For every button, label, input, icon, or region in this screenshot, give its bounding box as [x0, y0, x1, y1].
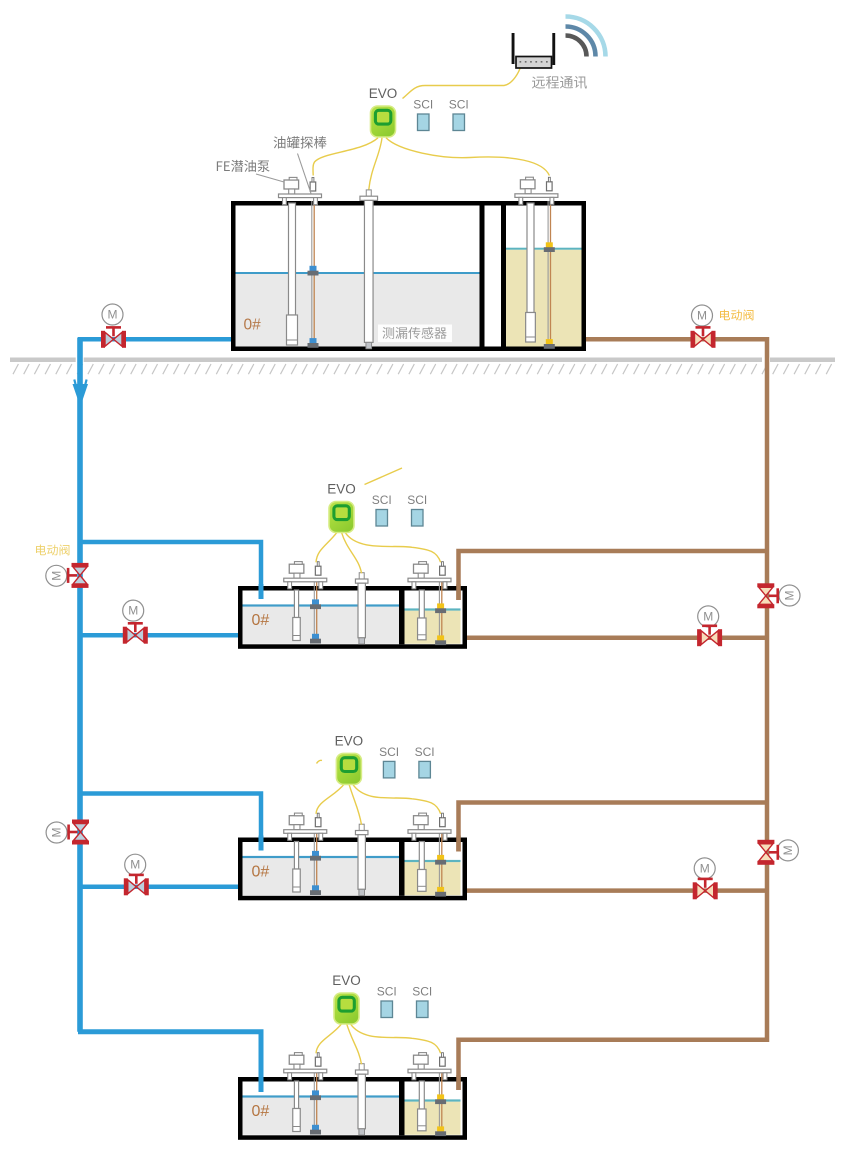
svg-text:0#: 0#: [252, 612, 270, 629]
svg-text:EVO: EVO: [332, 973, 361, 988]
svg-text:SCI: SCI: [449, 98, 469, 112]
svg-text:SCI: SCI: [413, 98, 433, 112]
svg-text:SCI: SCI: [407, 493, 427, 507]
svg-text:SCI: SCI: [412, 985, 432, 999]
svg-text:SCI: SCI: [379, 745, 399, 759]
svg-text:SCI: SCI: [415, 745, 435, 759]
svg-text:EVO: EVO: [335, 733, 364, 748]
svg-text:SCI: SCI: [372, 493, 392, 507]
svg-text:EVO: EVO: [327, 482, 356, 497]
svg-text:SCI: SCI: [377, 985, 397, 999]
svg-text:0#: 0#: [252, 1103, 270, 1120]
svg-text:EVO: EVO: [369, 86, 398, 101]
svg-text:0#: 0#: [252, 864, 270, 881]
svg-text:0#: 0#: [244, 317, 262, 334]
